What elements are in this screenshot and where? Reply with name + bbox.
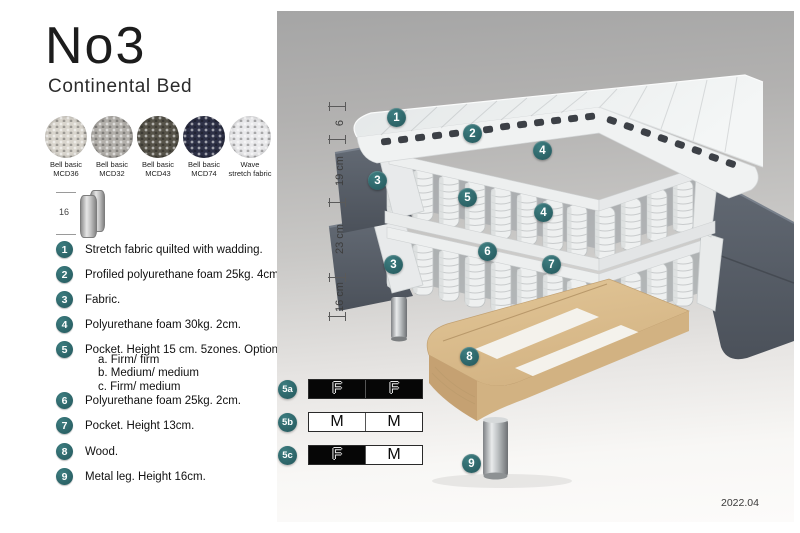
spec-item-text: Pocket. Height 13cm. xyxy=(85,420,194,432)
dimension-tick xyxy=(329,135,330,144)
spec-item-text: Wood. xyxy=(85,446,118,458)
dimension-tick xyxy=(328,316,346,317)
firmness-table: F M xyxy=(308,445,423,465)
spec-item-5-options: a. Firm/ firm b. Medium/ medium c. Firm/… xyxy=(98,354,199,394)
item-number-badge: 8 xyxy=(56,443,73,460)
spec-item-7: 7 Pocket. Height 13cm. xyxy=(56,417,194,434)
fabric-swatch-label: Bell basicMCD43 xyxy=(142,161,174,178)
fabric-swatch-row: Bell basicMCD36 Bell basicMCD32 Bell bas… xyxy=(43,116,273,178)
callout-8: 8 xyxy=(460,347,479,366)
item-number-badge: 6 xyxy=(56,392,73,409)
dimension-tick xyxy=(345,198,346,207)
spec-item-9: 9 Metal leg. Height 16cm. xyxy=(56,468,206,485)
callout-5: 5 xyxy=(458,188,477,207)
fabric-swatch-image xyxy=(91,116,133,158)
callout-3b: 3 xyxy=(384,255,403,274)
dimension-tick xyxy=(329,102,330,111)
callout-2: 2 xyxy=(463,124,482,143)
spec-item-text: Polyurethane foam 30kg. 2cm. xyxy=(85,319,241,331)
callout-3a: 3 xyxy=(368,171,387,190)
leg-height-value: 16 xyxy=(59,207,69,217)
item-number-badge: 5 xyxy=(56,341,73,358)
fabric-swatch-label: Bell basicMCD32 xyxy=(96,161,128,178)
spec-item-6: 6 Polyurethane foam 25kg. 2cm. xyxy=(56,392,241,409)
item-number-badge: 4 xyxy=(56,316,73,333)
firmness-row-badge: 5c xyxy=(278,446,297,465)
dimension-label-23cm: 23 cm xyxy=(334,209,346,269)
fabric-swatch: Wavestretch fabric xyxy=(227,116,273,178)
firmness-row-badge: 5a xyxy=(278,380,297,399)
firmness-table: F F xyxy=(308,379,423,399)
spec-item-text: Metal leg. Height 16cm. xyxy=(85,471,206,483)
spec-item-3: 3 Fabric. xyxy=(56,291,120,308)
fabric-swatch-image xyxy=(229,116,271,158)
leg-height-icon: 16 xyxy=(56,188,126,240)
metal-leg-picto xyxy=(80,195,97,238)
fabric-swatch: Bell basicMCD36 xyxy=(43,116,89,178)
option-a: a. Firm/ firm xyxy=(98,354,199,367)
callout-9: 9 xyxy=(462,454,481,473)
bed-illustration-panel: 6 19 cm 23 cm 16 cm 1 2 4 3 5 4 6 7 3 8 … xyxy=(277,11,794,522)
item-number-badge: 1 xyxy=(56,241,73,258)
firmness-row-5c: 5c F M xyxy=(278,445,423,465)
dimension-tick xyxy=(329,198,330,207)
fabric-swatch: Bell basicMCD74 xyxy=(181,116,227,178)
fabric-swatch-image xyxy=(45,116,87,158)
dimension-tick xyxy=(329,273,330,282)
fabric-swatch: Bell basicMCD43 xyxy=(135,116,181,178)
page-title: No3 xyxy=(45,16,146,76)
fabric-swatch: Bell basicMCD32 xyxy=(89,116,135,178)
dimension-tick xyxy=(329,312,330,321)
page-subtitle: Continental Bed xyxy=(48,76,192,98)
spec-item-text: Fabric. xyxy=(85,294,120,306)
firmness-row-badge: 5b xyxy=(278,413,297,432)
item-number-badge: 2 xyxy=(56,266,73,283)
fabric-swatch-label: Bell basicMCD36 xyxy=(50,161,82,178)
spec-item-text: Stretch fabric quilted with wadding. xyxy=(85,244,263,256)
callout-6: 6 xyxy=(478,242,497,261)
firmness-cell: F xyxy=(365,380,422,398)
dimension-tick xyxy=(328,139,346,140)
callout-1: 1 xyxy=(387,108,406,127)
item-number-badge: 9 xyxy=(56,468,73,485)
firmness-cell: M xyxy=(365,413,422,431)
spec-item-8: 8 Wood. xyxy=(56,443,118,460)
item-number-badge: 3 xyxy=(56,291,73,308)
firmness-cell: M xyxy=(365,446,422,464)
dimension-tick xyxy=(328,202,346,203)
firmness-row-5b: 5b M M xyxy=(278,412,423,432)
fabric-swatch-label: Wavestretch fabric xyxy=(229,161,272,178)
option-b: b. Medium/ medium xyxy=(98,367,199,380)
spec-item-text: Polyurethane foam 25kg. 2cm. xyxy=(85,395,241,407)
spec-item-4: 4 Polyurethane foam 30kg. 2cm. xyxy=(56,316,241,333)
callout-4a: 4 xyxy=(533,141,552,160)
spec-sheet-page: No3 Continental Bed Bell basicMCD36 Bell… xyxy=(0,0,800,533)
firmness-row-5a: 5a F F xyxy=(278,379,423,399)
version-date: 2022.04 xyxy=(721,497,759,509)
callout-4b: 4 xyxy=(534,203,553,222)
firmness-cell: F xyxy=(309,380,365,398)
tick-line xyxy=(56,234,76,235)
tick-line xyxy=(56,192,76,193)
fabric-swatch-label: Bell basicMCD74 xyxy=(188,161,220,178)
item-number-badge: 7 xyxy=(56,417,73,434)
firmness-cell: M xyxy=(309,413,365,431)
dimension-tick xyxy=(345,312,346,321)
fabric-swatch-image xyxy=(137,116,179,158)
spec-item-text: Profiled polyurethane foam 25kg. 4cm. xyxy=(85,269,282,281)
firmness-table: M M xyxy=(308,412,423,432)
fabric-swatch-image xyxy=(183,116,225,158)
spec-item-1: 1 Stretch fabric quilted with wadding. xyxy=(56,241,263,258)
firmness-cell: F xyxy=(309,446,365,464)
callout-7: 7 xyxy=(542,255,561,274)
dimension-label-19cm: 19 cm xyxy=(334,141,346,201)
spec-item-2: 2 Profiled polyurethane foam 25kg. 4cm. xyxy=(56,266,282,283)
